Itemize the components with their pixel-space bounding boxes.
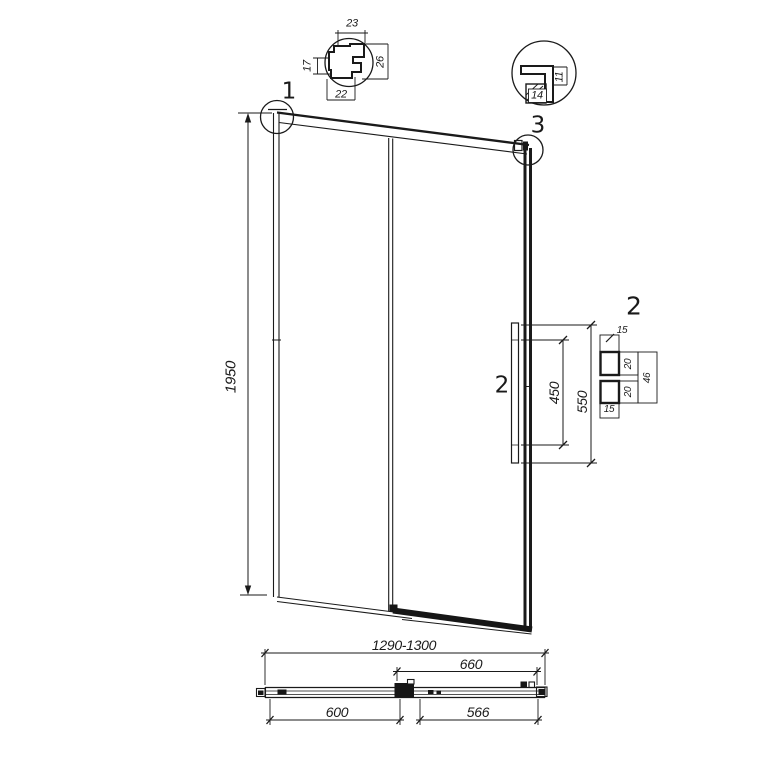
detail3-right-dim-label: 11 <box>555 72 566 83</box>
plan-opening-dim-label: 566 <box>467 705 489 719</box>
knob-upper <box>601 352 620 375</box>
knob-lower <box>601 381 620 403</box>
plan-door-dim-label: 660 <box>460 657 482 671</box>
detail2-lower-dim-label: 20 <box>624 387 634 398</box>
callout-3-label: 3 <box>531 115 546 138</box>
callout-1-label: 1 <box>282 81 297 104</box>
height-dimension <box>238 113 272 595</box>
door-handle <box>512 323 519 463</box>
center-bracket <box>395 683 415 698</box>
profile-1-shape <box>329 44 364 78</box>
technical-drawing-canvas: 1 3 2 2 1950 450 550 23 17 26 22 11 14 1… <box>0 0 780 780</box>
detail2-top-dim-label: 15 <box>617 326 628 336</box>
detail1-top-dim-label: 23 <box>346 19 358 30</box>
drawing-linework <box>0 0 780 780</box>
callout-circle-1 <box>261 101 294 134</box>
plan-view <box>257 649 550 725</box>
detail-3-section <box>512 41 576 105</box>
detail1-bottom-dim-label: 22 <box>335 90 347 101</box>
callout-2-detail-label: 2 <box>626 294 642 319</box>
detail1-left-dim-label: 17 <box>303 60 314 72</box>
detail2-bottom-dim-label: 15 <box>604 405 615 415</box>
elevation-view <box>238 101 597 635</box>
detail3-bottom-dim-label: 14 <box>531 90 543 101</box>
detail2-total-dim-label: 46 <box>643 373 653 384</box>
handle-length-dim-label: 550 <box>575 391 589 413</box>
plan-overall-dim-label: 1290-1300 <box>372 638 436 652</box>
detail1-right-dim-label: 26 <box>376 56 387 68</box>
plan-overall-dimension <box>261 649 549 685</box>
height-dim-label: 1950 <box>224 361 239 393</box>
handle-span-dim-label: 450 <box>547 382 561 404</box>
detail2-upper-dim-label: 20 <box>624 359 634 370</box>
plan-fixed-dim-label: 600 <box>326 705 348 719</box>
callout-2-handle-label: 2 <box>495 375 510 398</box>
